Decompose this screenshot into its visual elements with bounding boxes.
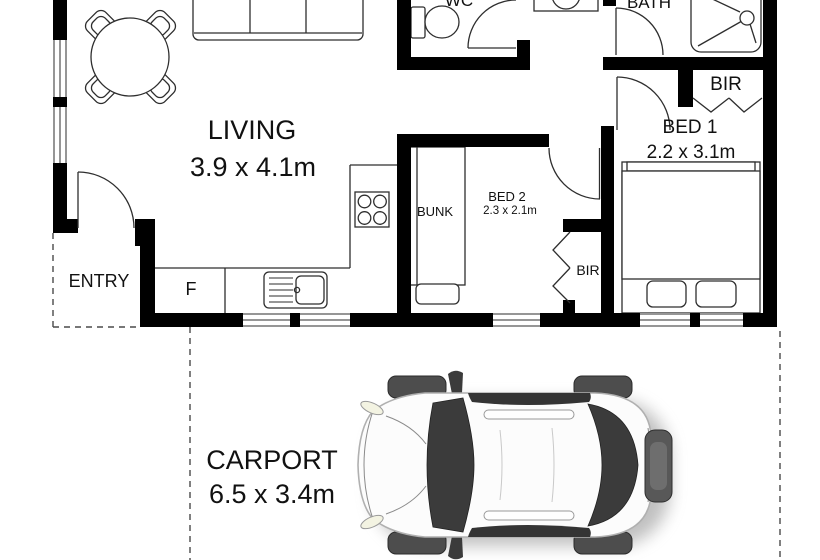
car-windshield — [427, 398, 474, 532]
sink-icon — [264, 272, 327, 308]
living-dims: 3.9 x 4.1m — [190, 152, 316, 182]
washing-machine-icon — [534, 0, 598, 11]
double-bed — [622, 162, 760, 313]
window — [700, 313, 743, 327]
car-mirror — [448, 371, 463, 394]
floor-plan: LIVING 3.9 x 4.1m ENTRY F WC BATH BIR BE… — [0, 0, 820, 560]
window — [243, 313, 290, 327]
wall-segment — [517, 40, 530, 57]
floor-plan-drawing: LIVING 3.9 x 4.1m ENTRY F WC BATH BIR BE… — [0, 0, 820, 560]
cooktop-icon — [355, 192, 389, 227]
bed2-dims: 2.3 x 2.1m — [483, 205, 537, 217]
bed1-robe-label: BIR — [710, 74, 742, 95]
carport-label: CARPORT — [206, 445, 338, 475]
bed2-label: BED 2 — [488, 189, 526, 204]
living-label: LIVING — [208, 115, 297, 145]
bed1-dims: 2.2 x 3.1m — [647, 142, 736, 163]
carport-dims: 6.5 x 3.4m — [209, 479, 335, 509]
bed1-label: BED 1 — [663, 117, 718, 138]
bunk-bed — [410, 147, 465, 304]
wc-label: WC — [445, 0, 473, 10]
wall-segment — [53, 219, 78, 233]
window — [53, 40, 67, 97]
entry-label: ENTRY — [69, 271, 130, 291]
entry-door — [78, 172, 134, 228]
fridge-label: F — [186, 279, 197, 299]
wall-segment — [397, 134, 549, 147]
dining-set — [83, 8, 179, 107]
dining-table — [91, 18, 169, 96]
car-roof-rail — [484, 410, 574, 419]
wall-segment — [140, 232, 155, 327]
wc-door — [468, 0, 516, 48]
bath-door — [616, 8, 663, 55]
window — [300, 313, 350, 327]
bed1-robe-bifold-door — [693, 98, 762, 112]
window — [493, 313, 540, 327]
shower-icon — [691, 0, 761, 52]
bed2-robe-label: BIR — [576, 262, 599, 278]
wall-segment — [601, 126, 614, 313]
wall-segment — [290, 313, 300, 327]
wall-segment — [350, 313, 493, 327]
car-top-view — [358, 371, 672, 560]
window — [640, 313, 690, 327]
bunk-label: BUNK — [417, 204, 453, 219]
wall-segment — [563, 219, 601, 232]
wall-segment — [397, 134, 411, 313]
wall-segment — [398, 57, 530, 70]
wall-segment — [53, 97, 67, 107]
wall-segment — [603, 0, 616, 6]
window — [53, 107, 67, 163]
car-side-windows — [468, 525, 591, 537]
wall-segment — [763, 0, 777, 327]
wall-segment — [690, 313, 700, 327]
toilet-icon — [411, 6, 459, 38]
car-roof-rail — [484, 511, 574, 520]
car-spare-wheel-center — [650, 442, 667, 490]
bath-label: BATH — [627, 0, 671, 12]
bed2-door — [549, 148, 600, 199]
wall-segment — [678, 57, 693, 107]
wall-segment — [540, 313, 640, 327]
car-side-windows — [468, 393, 591, 405]
bed2-robe-bifold-door — [553, 232, 570, 303]
sofa — [193, 0, 363, 40]
wall-segment — [53, 0, 67, 40]
wall-segment — [140, 313, 243, 327]
